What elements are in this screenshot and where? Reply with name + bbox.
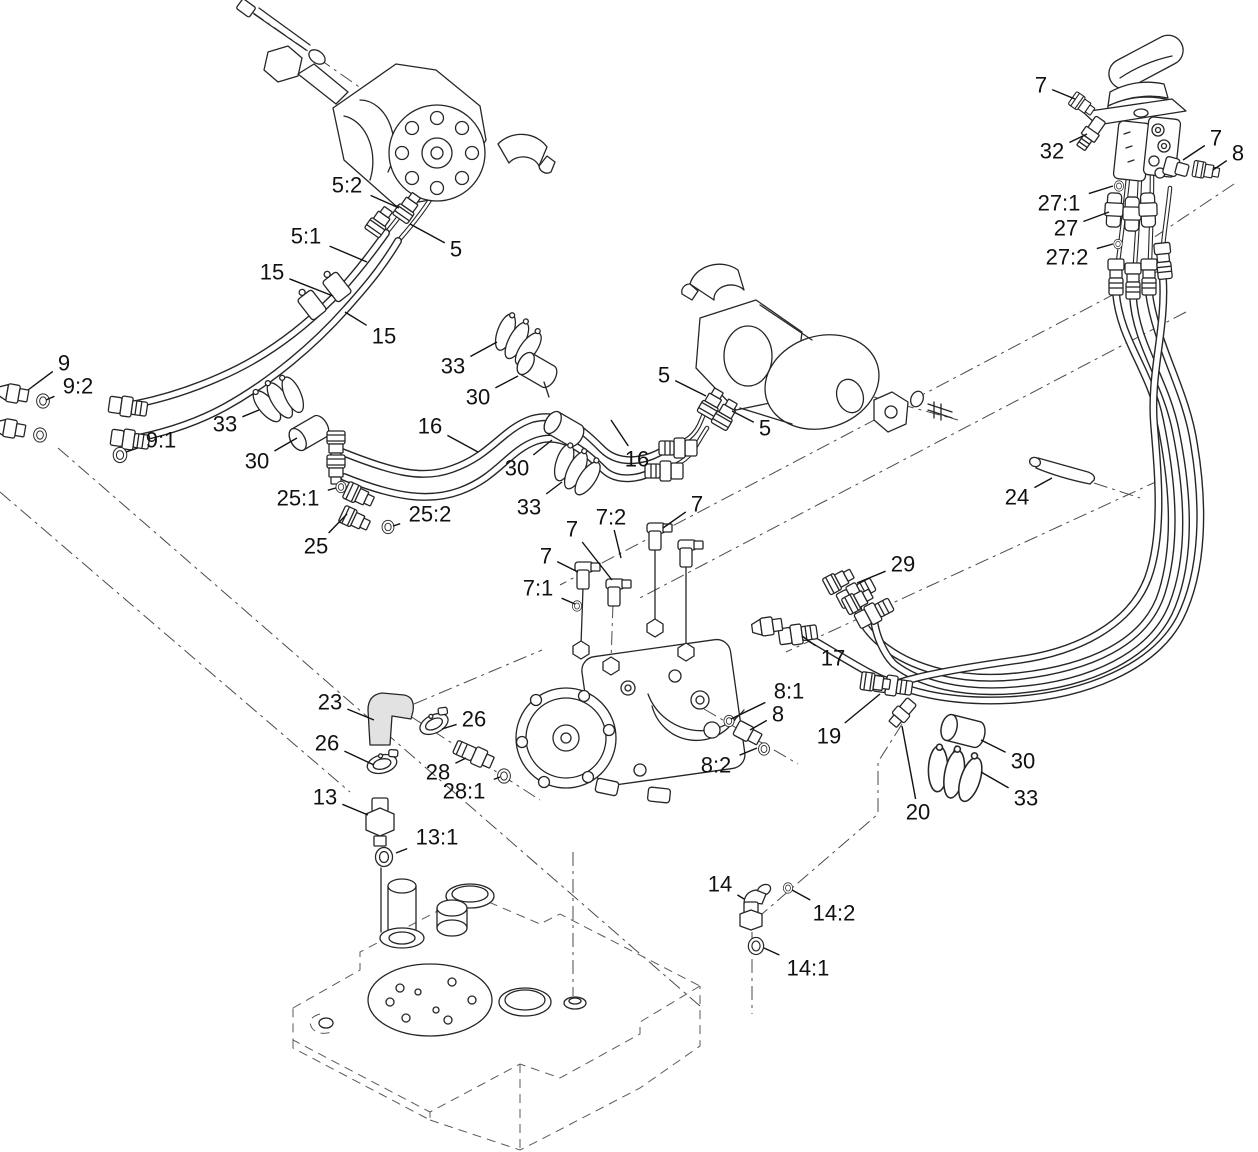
callout-label: 16 <box>418 414 442 439</box>
hose-crimp <box>1141 259 1157 295</box>
callout-label: 15 <box>260 260 284 285</box>
wire-clamp-33 <box>921 741 989 805</box>
callout-label: 7 <box>1210 126 1222 151</box>
o-ring-9-2 <box>37 394 50 408</box>
hex-nut <box>264 46 302 82</box>
hydraulic-tank <box>293 879 700 1150</box>
callout-label: 30 <box>466 385 490 410</box>
clamp-half <box>498 134 555 173</box>
callout-leader <box>342 804 368 815</box>
callout-label: 7:2 <box>596 505 627 530</box>
right-clamp-stack <box>921 713 989 805</box>
exploded-parts-diagram: 5:25:15151599:29:1333025:12525:216333030… <box>0 0 1258 1152</box>
callout-label: 7 <box>540 544 552 569</box>
callout-leader <box>28 371 53 390</box>
callout-label: 25:2 <box>409 502 452 527</box>
callout-label: 27 <box>1054 216 1078 241</box>
tank-cover-plate <box>368 964 492 1036</box>
o-ring-13-1 <box>376 848 393 867</box>
callout-label: 9 <box>58 351 70 376</box>
elbow-fitting-7 <box>606 579 631 606</box>
callout-leader <box>981 740 1006 752</box>
tank-tab-hole <box>310 1014 333 1033</box>
fitting-25 <box>338 505 372 534</box>
parts-diagram-page: 5:25:15151599:29:1333025:12525:216333030… <box>0 0 1258 1152</box>
hose-crimp <box>659 438 697 458</box>
callout-label: 9:2 <box>63 374 94 399</box>
pump-shaft <box>298 64 348 104</box>
washer <box>908 389 925 408</box>
callout-label: 29 <box>891 552 915 577</box>
callout-leader <box>732 411 754 422</box>
o-ring-27-2 <box>1114 239 1123 249</box>
o-ring-14-1 <box>748 937 763 954</box>
callout-label: 7 <box>691 492 703 517</box>
callout-label: 30 <box>245 449 269 474</box>
o-ring-9-2 <box>34 428 47 442</box>
callout-label: 8 <box>772 702 784 727</box>
check-valve-27 <box>1104 193 1124 228</box>
callout-leader <box>981 772 1009 788</box>
callout-label: 23 <box>318 690 342 715</box>
callout-label: 8 <box>1232 141 1244 166</box>
elbow-fitting-7 <box>678 540 703 567</box>
tank-port-cap <box>564 997 586 1009</box>
callout-label: 5 <box>759 416 771 441</box>
callout-leader <box>1083 212 1109 222</box>
callout-label: 5:2 <box>332 173 363 198</box>
sleeve-30 <box>938 713 987 749</box>
callout-leader <box>396 849 407 853</box>
callout-leader <box>750 720 767 730</box>
elbow-fitting-7 <box>647 523 672 550</box>
elbow-fitting-20 <box>887 696 919 729</box>
check-valve-27 <box>1138 193 1157 228</box>
washer <box>306 47 328 67</box>
callout-label: 15 <box>372 324 396 349</box>
callout-leader <box>455 758 466 763</box>
fitting-14-assembly <box>740 882 793 954</box>
gear-pump-right <box>645 264 952 481</box>
callout-label: 33 <box>1014 786 1038 811</box>
callout-leader <box>242 410 259 417</box>
callout-label: 33 <box>441 354 465 379</box>
elbow-fitting-7 <box>575 562 600 589</box>
fitting-5 <box>364 204 395 238</box>
clamp-half <box>682 264 744 300</box>
rubber-elbow-23 <box>368 693 413 745</box>
callout-label: 26 <box>315 731 339 756</box>
callout-label: 7 <box>566 517 578 542</box>
callout-label: 17 <box>821 646 845 671</box>
fitting-32 <box>1074 115 1107 153</box>
o-ring-8-2 <box>758 743 769 755</box>
callout-label: 14:2 <box>813 901 856 926</box>
elbow-fitting-14 <box>740 882 773 930</box>
callout-label: 27:2 <box>1046 245 1089 270</box>
callout-label: 25:1 <box>277 486 320 511</box>
callout-label: 13 <box>313 785 337 810</box>
tandem-pump-center <box>516 523 798 803</box>
callout-label: 5:1 <box>291 224 322 249</box>
o-ring-7-1 <box>572 601 581 611</box>
callout-leader <box>792 890 810 900</box>
middle-clamp-stacks <box>485 308 608 501</box>
callout-label: 14 <box>708 872 732 897</box>
o-ring-27-1 <box>1114 181 1123 191</box>
sleeve-30 <box>286 413 333 454</box>
bolt-head <box>236 0 256 18</box>
callout-label: 13:1 <box>416 825 459 850</box>
callout-leader <box>344 751 374 765</box>
callout-leader <box>737 895 744 899</box>
o-ring-9-1 <box>113 447 127 462</box>
callout-label: 27:1 <box>1038 191 1081 216</box>
male-fitting-9 <box>0 382 29 405</box>
callout-label: 25 <box>304 534 328 559</box>
barb-fitting-28 <box>452 738 496 771</box>
callout-labels: 5:25:15151599:29:1333025:12525:216333030… <box>28 73 1244 981</box>
callout-label: 30 <box>1011 749 1035 774</box>
cable-tie-24 <box>1028 456 1094 484</box>
callout-leader <box>1183 146 1205 161</box>
hose-crimp <box>108 394 148 419</box>
callout-leader <box>663 512 686 528</box>
callout-label: 33 <box>213 412 237 437</box>
callout-leader <box>1034 478 1052 488</box>
o-ring-28-1 <box>498 769 511 783</box>
callout-label: 20 <box>906 800 930 825</box>
callout-leader <box>764 948 779 955</box>
callout-label: 9:1 <box>146 428 177 453</box>
callout-leader <box>562 598 575 604</box>
callout-leader <box>902 726 916 799</box>
callout-label: 14:1 <box>787 956 830 981</box>
callout-leader <box>675 381 706 396</box>
callout-leader <box>1097 244 1113 249</box>
o-ring-14-2 <box>783 883 792 893</box>
hose-bundle <box>806 279 1200 700</box>
hose-16-pair <box>342 398 713 497</box>
callout-leader <box>845 694 880 723</box>
hose-crimp <box>645 461 683 481</box>
tank-small-cylinder <box>437 900 467 936</box>
callout-label: 8:1 <box>774 679 805 704</box>
callout-leader <box>1052 90 1075 99</box>
callout-leader <box>495 376 518 388</box>
callout-label: 30 <box>505 456 529 481</box>
tank-filler-neck <box>380 879 424 948</box>
fitting-8 <box>1192 160 1221 180</box>
callout-leader <box>345 312 367 325</box>
male-fitting-9 <box>0 417 26 440</box>
callout-leader <box>611 420 628 446</box>
callout-label: 24 <box>1005 485 1029 510</box>
callout-label: 26 <box>462 707 486 732</box>
callout-leader <box>410 224 445 243</box>
hose-clamp-15 <box>318 266 352 302</box>
callout-label: 28:1 <box>443 779 486 804</box>
o-ring-25-2 <box>382 520 394 533</box>
joystick-control <box>1068 30 1220 299</box>
callout-label: 16 <box>625 447 649 472</box>
hose-clamp-15 <box>293 284 327 320</box>
callout-leader <box>470 342 497 357</box>
callout-label: 5 <box>450 237 462 262</box>
callout-label: 32 <box>1040 139 1064 164</box>
tank-port-ring-2 <box>499 988 551 1016</box>
callout-label: 7 <box>1035 73 1047 98</box>
callout-leader <box>328 488 336 490</box>
callout-label: 33 <box>517 495 541 520</box>
callout-leader <box>546 482 562 494</box>
fitting-13 <box>366 798 394 846</box>
o-ring-8-1 <box>724 715 734 726</box>
callout-leader <box>447 435 478 452</box>
callout-label: 8:2 <box>701 753 732 778</box>
callout-label: 19 <box>817 724 841 749</box>
hose-crimp <box>1125 263 1141 299</box>
callout-leader <box>1089 186 1113 194</box>
callout-label: 5 <box>658 363 670 388</box>
hose-crimp <box>1108 259 1124 295</box>
callout-leader <box>614 530 621 558</box>
callout-label: 7:1 <box>523 576 554 601</box>
callout-leader <box>330 246 367 262</box>
